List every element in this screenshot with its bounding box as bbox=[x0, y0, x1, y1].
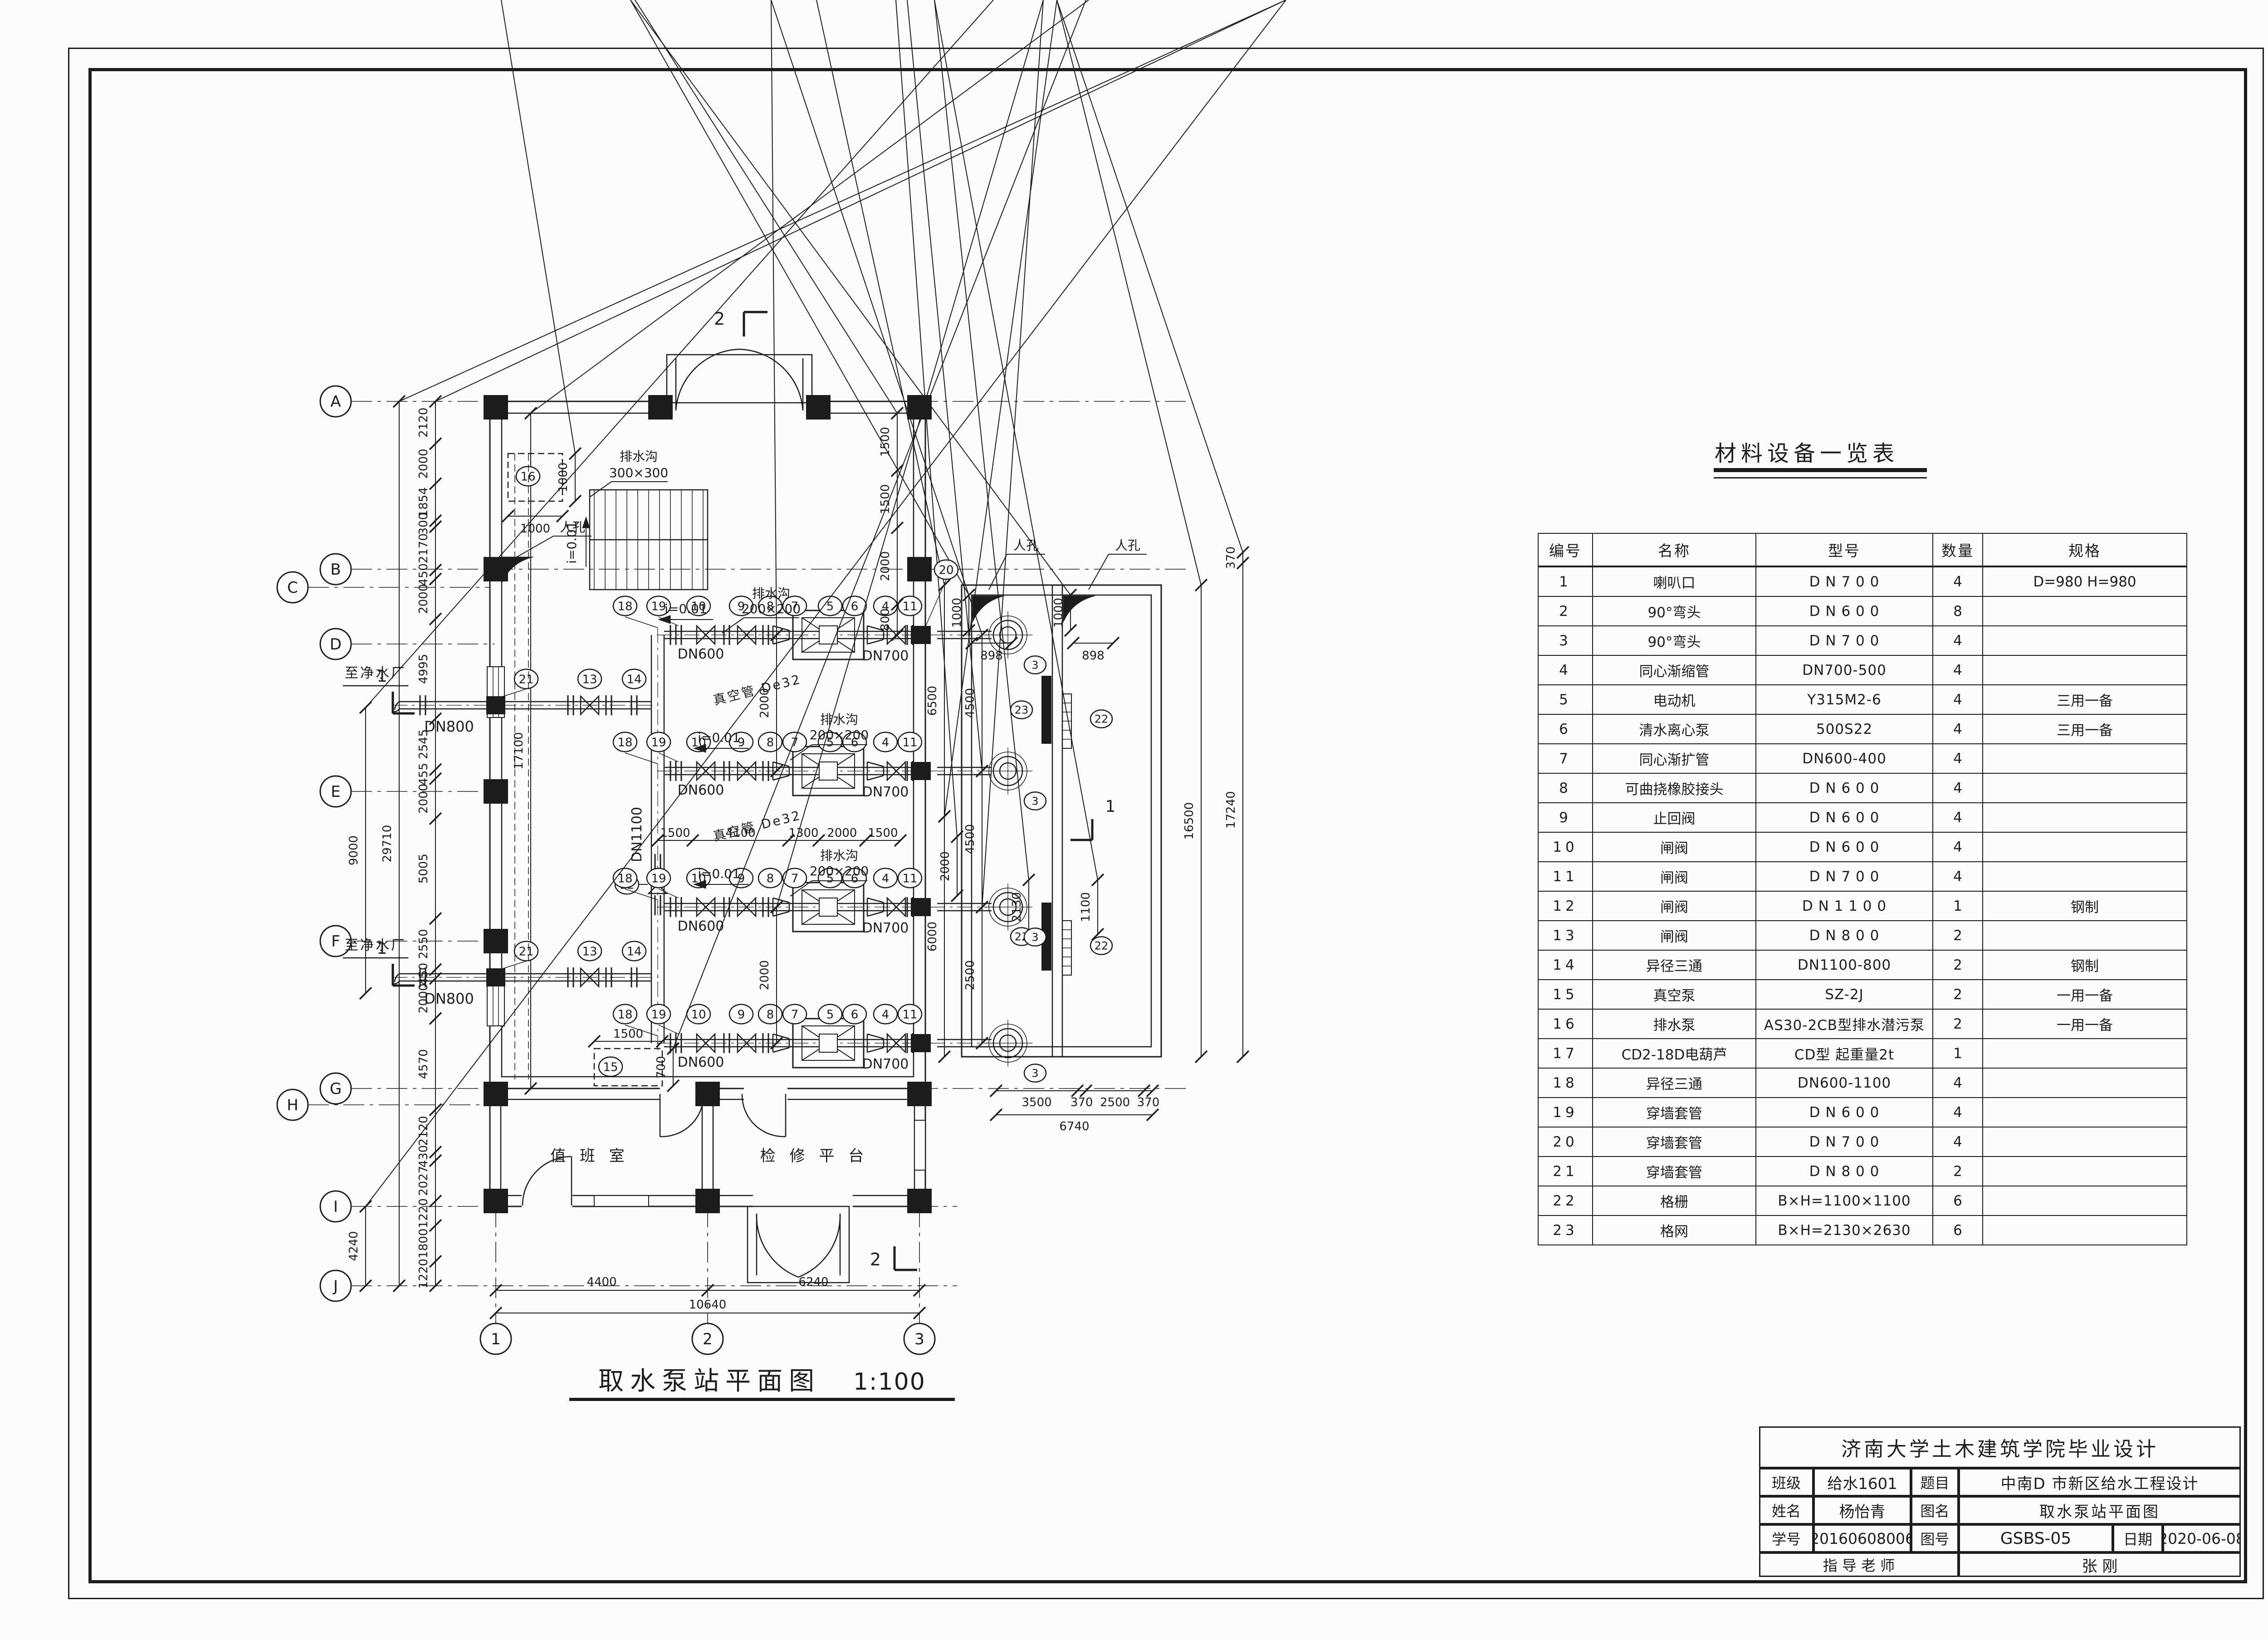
path bbox=[395, 974, 399, 982]
leader bbox=[1089, 554, 1109, 590]
cell-model: DN700-500 bbox=[1756, 655, 1933, 685]
cell-qty: 4 bbox=[1933, 714, 1983, 744]
pipe-label: DN700 bbox=[862, 920, 909, 936]
equipment-bubble-label: 6 bbox=[851, 600, 859, 613]
dim-label: 17240 bbox=[1224, 791, 1238, 829]
column bbox=[484, 779, 508, 804]
dim-label: 370 bbox=[1224, 547, 1238, 569]
cell-spec: 钢制 bbox=[1983, 891, 2187, 921]
section-mark: 2 bbox=[870, 1250, 881, 1269]
equipment-bubble-label: 11 bbox=[902, 736, 917, 749]
note-label: i=0.01 bbox=[698, 866, 740, 881]
cell-no: 23 bbox=[1538, 1215, 1593, 1245]
note-label: i=0.01 bbox=[665, 601, 707, 616]
cell-model: CD型 起重量2t bbox=[1756, 1039, 1933, 1068]
cell-name: 同心渐缩管 bbox=[1593, 655, 1756, 685]
dim-label: 1500 bbox=[613, 1027, 643, 1041]
equipment-bubble-label: 19 bbox=[651, 600, 666, 613]
leader bbox=[625, 889, 658, 900]
dim-label: 17100 bbox=[512, 732, 526, 770]
axis-bubble-label: F bbox=[331, 932, 340, 951]
cell-name: 闸阀 bbox=[1593, 832, 1756, 862]
line bbox=[399, 0, 1286, 401]
cell-spec: D=980 H=980 bbox=[1983, 566, 2187, 596]
pipe-label: DN600 bbox=[678, 646, 724, 662]
room-label: 值 班 室 bbox=[550, 1147, 629, 1165]
line bbox=[1057, 0, 1243, 552]
cell-name: 电动机 bbox=[1593, 685, 1756, 714]
manhole-corner-hatch bbox=[1063, 596, 1095, 622]
dim-label: 6740 bbox=[1059, 1120, 1089, 1133]
cell-no: 20 bbox=[1538, 1127, 1593, 1157]
caption-underline bbox=[569, 1398, 955, 1401]
column bbox=[695, 1189, 720, 1213]
dim-label: 370 bbox=[1070, 1096, 1093, 1109]
equipment-bubble-label: 19 bbox=[651, 1008, 666, 1021]
cell-spec bbox=[1983, 832, 2187, 862]
motor-square bbox=[819, 762, 837, 780]
table-row: 10闸阀D N 6 0 04 bbox=[1538, 832, 2187, 862]
equipment-bubble-label: 18 bbox=[617, 736, 632, 749]
cell-qty: 4 bbox=[1933, 1127, 1983, 1157]
dim-label: 2000 bbox=[879, 551, 892, 581]
dim-label: 4400 bbox=[587, 1275, 616, 1289]
table-header-row: 编号 名称 型号 数量 规格 bbox=[1538, 533, 2187, 566]
cell-model: D N 7 0 0 bbox=[1756, 626, 1933, 655]
mesh-bar bbox=[1041, 676, 1051, 744]
cell-model: D N 6 0 0 bbox=[1756, 1098, 1933, 1127]
dim-label: 16500 bbox=[1183, 802, 1196, 840]
table-row: 6清水离心泵500S224三用一备 bbox=[1538, 714, 2187, 744]
cell-no: 16 bbox=[1538, 1009, 1593, 1039]
equipment-bubble-label: 8 bbox=[767, 736, 774, 749]
dim-label: 370 bbox=[1137, 1096, 1160, 1109]
pipe-label: DN700 bbox=[862, 1056, 909, 1072]
dim-label: 1800 bbox=[417, 1229, 430, 1259]
cell-spec bbox=[1983, 626, 2187, 655]
note-label: 至净水厂 bbox=[345, 665, 406, 681]
dim-label: 2000 bbox=[758, 688, 772, 718]
cell-qty: 4 bbox=[1933, 862, 1983, 891]
pipe-label: DN600 bbox=[678, 1054, 724, 1070]
cell-model: D N 8 0 0 bbox=[1756, 1157, 1933, 1186]
line bbox=[501, 0, 575, 454]
dim-label: 2000 bbox=[417, 983, 430, 1013]
cell-name: 闸阀 bbox=[1593, 921, 1756, 950]
dim-label: 2500 bbox=[963, 960, 977, 990]
column bbox=[484, 395, 508, 420]
cell-name: 穿墙套管 bbox=[1593, 1157, 1756, 1186]
materials-table-title: 材料设备一览表 bbox=[1715, 435, 1899, 467]
cell-qty: 4 bbox=[1933, 655, 1983, 685]
titleblock-school: 济南大学土木建筑学院毕业设计 bbox=[1759, 1426, 2241, 1468]
dim-label: 800 bbox=[879, 608, 892, 631]
cell-model: D N 7 0 0 bbox=[1756, 862, 1933, 891]
cell-model: D N 6 0 0 bbox=[1756, 596, 1933, 626]
leader bbox=[498, 961, 526, 970]
column bbox=[648, 395, 673, 420]
cell-spec: 一用一备 bbox=[1983, 980, 2187, 1009]
dim-label: 1500 bbox=[660, 826, 690, 840]
table-row: 18异径三通DN600-11004 bbox=[1538, 1068, 2187, 1098]
cell-spec: 三用一备 bbox=[1983, 685, 2187, 714]
dim-label: 2000 bbox=[758, 960, 772, 990]
dim-label: 450 bbox=[417, 563, 430, 586]
equipment-bubble-label: 7 bbox=[791, 872, 799, 885]
cell-name: CD2-18D电葫芦 bbox=[1593, 1039, 1756, 1068]
leader bbox=[625, 753, 658, 764]
note-label: 200×200 bbox=[810, 864, 869, 879]
caption-scale: 1:100 bbox=[853, 1368, 926, 1396]
equipment-bubble-label: 13 bbox=[582, 945, 597, 958]
dim-label: 1000 bbox=[557, 462, 570, 492]
cell-qty: 8 bbox=[1933, 596, 1983, 626]
class-value: 给水1601 bbox=[1813, 1468, 1911, 1496]
equipment-bubble-label: 22 bbox=[1095, 713, 1109, 726]
equipment-bubble-label: 5 bbox=[826, 600, 834, 613]
dim-label: 2000 bbox=[938, 851, 952, 881]
cell-model: D N 8 0 0 bbox=[1756, 921, 1933, 950]
equipment-bubble-label: 21 bbox=[518, 673, 533, 686]
dim-label: 2500 bbox=[1100, 1096, 1130, 1109]
cell-name: 90°弯头 bbox=[1593, 626, 1756, 655]
door-opening bbox=[522, 1195, 572, 1208]
cell-spec bbox=[1983, 1127, 2187, 1157]
equipment-bubble-label: 4 bbox=[882, 736, 890, 749]
leader bbox=[659, 753, 679, 762]
date-label: 日期 bbox=[2113, 1524, 2163, 1552]
line bbox=[944, 0, 1057, 816]
cell-model: DN1100-800 bbox=[1756, 950, 1933, 980]
column bbox=[484, 1189, 508, 1213]
dim-label: 2545 bbox=[417, 729, 430, 759]
date-value: 2020-06-08 bbox=[2163, 1524, 2241, 1552]
equipment-bubble-label: 19 bbox=[651, 872, 666, 885]
axis-bubble-label: G bbox=[330, 1080, 342, 1098]
cell-qty: 4 bbox=[1933, 832, 1983, 862]
cell-qty: 2 bbox=[1933, 1009, 1983, 1039]
table-row: 17CD2-18D电葫芦CD型 起重量2t1 bbox=[1538, 1039, 2187, 1068]
cell-qty: 4 bbox=[1933, 566, 1983, 596]
cell-model: D N 6 0 0 bbox=[1756, 773, 1933, 803]
wall-sleeve bbox=[911, 626, 931, 644]
equipment-bubble-label: 3 bbox=[1031, 931, 1038, 944]
cell-qty: 1 bbox=[1933, 891, 1983, 921]
dim-label: 450 bbox=[417, 963, 430, 986]
pipe-label: DN600 bbox=[678, 782, 724, 798]
cell-qty: 4 bbox=[1933, 1068, 1983, 1098]
name-value: 杨怡青 bbox=[1813, 1496, 1911, 1524]
dim-label: 300 bbox=[417, 512, 430, 535]
arrow bbox=[659, 615, 670, 624]
axis-bubble-label: 3 bbox=[914, 1330, 924, 1348]
axis-bubble-label: B bbox=[330, 561, 341, 579]
equipment-bubble-label: 23 bbox=[1015, 704, 1029, 717]
equipment-bubble-label: 6 bbox=[851, 1008, 859, 1021]
cell-name: 闸阀 bbox=[1593, 862, 1756, 891]
cell-name: 异径三通 bbox=[1593, 950, 1756, 980]
table-row: 22格栅B×H=1100×11006 bbox=[1538, 1186, 2187, 1215]
cell-model: AS30-2CB型排水潜污泵 bbox=[1756, 1009, 1933, 1039]
equipment-bubble-label: 18 bbox=[617, 600, 632, 613]
dim-label: 2000 bbox=[827, 826, 857, 840]
cell-model: B×H=2130×2630 bbox=[1756, 1215, 1933, 1245]
line bbox=[635, 0, 897, 413]
table-row: 15真空泵SZ-2J2一用一备 bbox=[1538, 980, 2187, 1009]
column bbox=[484, 929, 508, 953]
motor-square bbox=[819, 1034, 837, 1052]
dim-label: 29710 bbox=[381, 825, 394, 863]
plan-caption: 取水泵站平面图 1:100 bbox=[535, 1361, 989, 1397]
dim-label: 6000 bbox=[926, 922, 939, 952]
equipment-bubble-label: 11 bbox=[902, 1008, 917, 1021]
equipment-bubble-label: 16 bbox=[520, 470, 535, 483]
column bbox=[907, 395, 932, 420]
dim-label: 2170 bbox=[417, 533, 430, 563]
cell-name: 可曲挠橡胶接头 bbox=[1593, 773, 1756, 803]
dim-label: 2000 bbox=[417, 449, 430, 478]
cell-spec bbox=[1983, 1215, 2187, 1245]
col-header-qty: 数量 bbox=[1933, 533, 1983, 566]
sid-value: 20160608006 bbox=[1813, 1524, 1911, 1552]
note-label: i=0.01 bbox=[564, 521, 579, 564]
note-label: 真空管 De32 bbox=[712, 672, 803, 708]
dim-label: 2000 bbox=[417, 584, 430, 614]
advisor-value: 张 刚 bbox=[1959, 1552, 2241, 1577]
cell-spec bbox=[1983, 1157, 2187, 1186]
dim-label: 4240 bbox=[347, 1231, 361, 1261]
dim-label: 1220 bbox=[417, 1259, 430, 1289]
cell-no: 9 bbox=[1538, 803, 1593, 832]
column bbox=[907, 1082, 932, 1106]
cell-no: 18 bbox=[1538, 1068, 1593, 1098]
drawing-sheet: ABCDEFGHIJ123440062401064022值 班 室检 修 平 台… bbox=[0, 0, 2268, 1640]
dim-label: 4570 bbox=[417, 1049, 430, 1079]
table-row: 7同心渐扩管DN600-4004 bbox=[1538, 744, 2187, 773]
cell-qty: 4 bbox=[1933, 626, 1983, 655]
equipment-bubble-label: 11 bbox=[902, 600, 917, 613]
sid-label: 学号 bbox=[1759, 1524, 1813, 1552]
cell-name: 闸阀 bbox=[1593, 891, 1756, 921]
pipe-label: DN800 bbox=[424, 718, 474, 735]
column bbox=[484, 1082, 508, 1106]
cell-spec: 钢制 bbox=[1983, 950, 2187, 980]
line bbox=[771, 0, 982, 635]
dim-label: 5005 bbox=[417, 854, 430, 883]
topic-label: 题目 bbox=[1911, 1468, 1959, 1496]
table-row: 8可曲挠橡胶接头D N 6 0 04 bbox=[1538, 773, 2187, 803]
section-mark: 2 bbox=[714, 309, 725, 329]
axis-bubble-label: E bbox=[331, 783, 340, 801]
cell-name: 排水泵 bbox=[1593, 1009, 1756, 1039]
cell-qty: 1 bbox=[1933, 1039, 1983, 1068]
cell-spec bbox=[1983, 1039, 2187, 1068]
table-row: 19穿墙套管D N 6 0 04 bbox=[1538, 1098, 2187, 1127]
equipment-bubble-label: 20 bbox=[938, 563, 953, 577]
door-arc bbox=[757, 1214, 798, 1277]
cell-no: 8 bbox=[1538, 773, 1593, 803]
dim-label: 1100 bbox=[1079, 892, 1093, 922]
leader bbox=[925, 580, 946, 627]
equipment-bubble-label: 11 bbox=[902, 872, 917, 885]
advisor-label: 指 导 老 师 bbox=[1759, 1552, 1959, 1577]
equipment-bubble-label: 21 bbox=[518, 945, 533, 958]
note-label: 至净水厂 bbox=[345, 937, 406, 953]
cell-spec: 一用一备 bbox=[1983, 1009, 2187, 1039]
dim-label: 1500 bbox=[879, 427, 892, 457]
cell-spec bbox=[1983, 1186, 2187, 1215]
col-header-model: 型号 bbox=[1756, 533, 1933, 566]
line bbox=[934, 0, 1098, 880]
cell-model: D N 7 0 0 bbox=[1756, 1127, 1933, 1157]
cell-no: 19 bbox=[1538, 1098, 1593, 1127]
equipment-bubble-label: 19 bbox=[651, 736, 666, 749]
cell-no: 2 bbox=[1538, 596, 1593, 626]
note-label: 排水沟 bbox=[620, 449, 658, 464]
axis-bubble-label: 2 bbox=[703, 1330, 713, 1348]
dim-label: 1220 bbox=[417, 1198, 430, 1228]
cell-name: 真空泵 bbox=[1593, 980, 1756, 1009]
equipment-bubble-label: 8 bbox=[767, 1008, 774, 1021]
dim-label: 2000 bbox=[417, 784, 430, 814]
path bbox=[395, 702, 399, 710]
col-header-name: 名称 bbox=[1593, 533, 1756, 566]
axis-bubble-label: A bbox=[330, 393, 341, 411]
title-underline bbox=[1714, 468, 1927, 472]
wall-sleeve bbox=[911, 762, 931, 780]
dim-label: 2550 bbox=[417, 929, 430, 959]
cell-no: 11 bbox=[1538, 862, 1593, 891]
table-row: 9止回阀D N 6 0 04 bbox=[1538, 803, 2187, 832]
equipment-bubble-label: 10 bbox=[691, 1008, 706, 1021]
cell-name: 90°弯头 bbox=[1593, 596, 1756, 626]
dim-label: 4100 bbox=[726, 826, 756, 840]
axis-bubble-label: D bbox=[330, 635, 342, 654]
table-row: 20穿墙套管D N 7 0 04 bbox=[1538, 1127, 2187, 1157]
cell-no: 6 bbox=[1538, 714, 1593, 744]
cell-model: D N 6 0 0 bbox=[1756, 803, 1933, 832]
dim-label: 455 bbox=[417, 763, 430, 786]
cell-no: 13 bbox=[1538, 921, 1593, 950]
door-frame bbox=[667, 355, 812, 403]
cell-no: 1 bbox=[1538, 566, 1593, 596]
dim-label: 1000 bbox=[1052, 598, 1066, 628]
column bbox=[907, 1189, 932, 1213]
wall-sleeve bbox=[911, 1034, 931, 1052]
table-row: 390°弯头D N 7 0 04 bbox=[1538, 626, 2187, 655]
dim-label: 4500 bbox=[963, 824, 977, 854]
cell-qty: 4 bbox=[1933, 773, 1983, 803]
cell-qty: 6 bbox=[1933, 1186, 1983, 1215]
cell-qty: 6 bbox=[1933, 1215, 1983, 1245]
cell-model: D N 6 0 0 bbox=[1756, 832, 1933, 862]
dim-label: 10640 bbox=[689, 1298, 727, 1312]
dwgno-value: GSBS-05 bbox=[1959, 1524, 2113, 1552]
equipment-bubble-label: 4 bbox=[882, 872, 890, 885]
col-header-no: 编号 bbox=[1538, 533, 1593, 566]
cell-spec bbox=[1983, 773, 2187, 803]
leader bbox=[659, 1025, 679, 1034]
col-header-spec: 规格 bbox=[1983, 533, 2187, 566]
cell-no: 12 bbox=[1538, 891, 1593, 921]
cell-name: 同心渐扩管 bbox=[1593, 744, 1756, 773]
dim-label: 4995 bbox=[417, 654, 430, 684]
cell-spec bbox=[1983, 655, 2187, 685]
cell-name: 格栅 bbox=[1593, 1186, 1756, 1215]
cell-model: B×H=1100×1100 bbox=[1756, 1186, 1933, 1215]
cell-model: SZ-2J bbox=[1756, 980, 1933, 1009]
line bbox=[1057, 0, 1201, 585]
table-row: 4同心渐缩管DN700-5004 bbox=[1538, 655, 2187, 685]
axis-bubble-label: 1 bbox=[491, 1330, 501, 1348]
cell-name: 止回阀 bbox=[1593, 803, 1756, 832]
equipment-bubble-label: 4 bbox=[882, 1008, 890, 1021]
pipe-label: DN700 bbox=[862, 648, 909, 664]
pipe-label: DN1100 bbox=[629, 807, 645, 862]
note-label: 300×300 bbox=[609, 465, 668, 480]
cell-name: 异径三通 bbox=[1593, 1068, 1756, 1098]
cell-qty: 4 bbox=[1933, 744, 1983, 773]
cell-model: DN600-1100 bbox=[1756, 1068, 1933, 1098]
cell-name: 穿墙套管 bbox=[1593, 1098, 1756, 1127]
cell-spec bbox=[1983, 803, 2187, 832]
class-label: 班级 bbox=[1759, 1468, 1813, 1496]
cell-no: 14 bbox=[1538, 950, 1593, 980]
dim-label: 1300 bbox=[788, 826, 818, 840]
cell-qty: 2 bbox=[1933, 980, 1983, 1009]
cell-spec bbox=[1983, 596, 2187, 626]
column bbox=[695, 1082, 720, 1106]
table-row: 12闸阀D N 1 1 0 01钢制 bbox=[1538, 891, 2187, 921]
table-row: 14异径三通DN1100-8002钢制 bbox=[1538, 950, 2187, 980]
cell-spec bbox=[1983, 862, 2187, 891]
door-opening bbox=[744, 1088, 787, 1100]
cell-spec bbox=[1983, 1098, 2187, 1127]
cell-no: 4 bbox=[1538, 655, 1593, 685]
door-arc bbox=[798, 1214, 840, 1277]
cell-name: 喇叭口 bbox=[1593, 566, 1756, 596]
note-label: 排水沟 bbox=[820, 848, 858, 863]
table-row: 11闸阀D N 7 0 04 bbox=[1538, 862, 2187, 891]
cell-model: Y315M2-6 bbox=[1756, 685, 1933, 714]
dim-label: 3500 bbox=[1022, 1096, 1051, 1109]
table-row: 23格网B×H=2130×26306 bbox=[1538, 1215, 2187, 1245]
axis-bubble-label: J bbox=[332, 1277, 338, 1295]
equipment-bubble-label: 18 bbox=[617, 1008, 632, 1021]
note-label: 人孔 bbox=[1115, 538, 1140, 553]
caption-text: 取水泵站平面图 bbox=[598, 1367, 821, 1396]
note-label: 200×200 bbox=[742, 601, 801, 616]
dim-label: 2027 bbox=[417, 1166, 430, 1196]
cell-spec: 三用一备 bbox=[1983, 714, 2187, 744]
dim-label: 898 bbox=[1082, 649, 1105, 663]
equipment-bubble-label: 14 bbox=[626, 673, 641, 686]
line bbox=[435, 0, 1286, 401]
dwgname-label: 图名 bbox=[1911, 1496, 1959, 1524]
title-underline-2 bbox=[1714, 477, 1927, 478]
table-row: 16排水泵AS30-2CB型排水潜污泵2一用一备 bbox=[1538, 1009, 2187, 1039]
cell-model: DN600-400 bbox=[1756, 744, 1933, 773]
line bbox=[771, 0, 777, 635]
table-row: 290°弯头D N 6 0 08 bbox=[1538, 596, 2187, 626]
column bbox=[907, 557, 932, 581]
cell-no: 15 bbox=[1538, 980, 1593, 1009]
path bbox=[742, 1094, 786, 1137]
cell-model: D N 1 1 0 0 bbox=[1756, 891, 1933, 921]
motor-square bbox=[819, 626, 837, 644]
dim-label: 430 bbox=[417, 1145, 430, 1168]
cell-qty: 4 bbox=[1933, 685, 1983, 714]
